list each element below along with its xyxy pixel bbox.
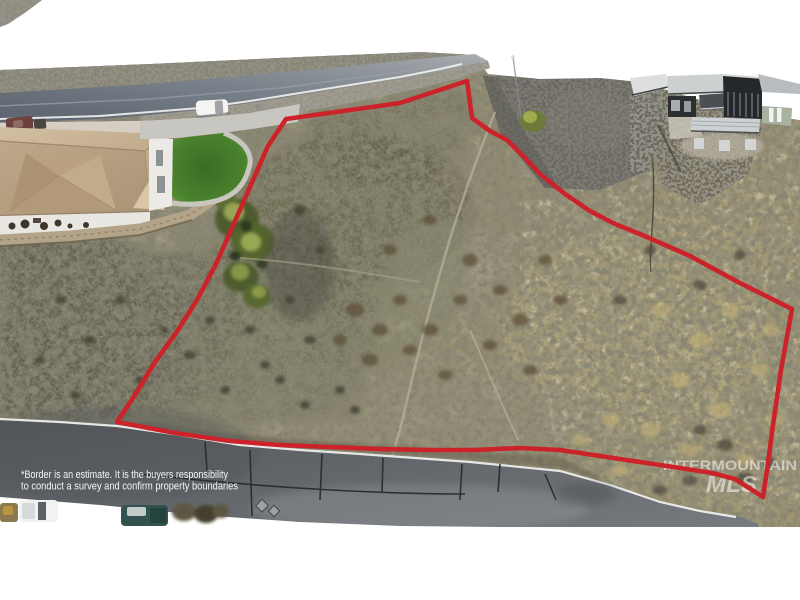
svg-text:*Border is an estimate. It is: *Border is an estimate. It is the buyers… bbox=[21, 469, 228, 481]
svg-text:to conduct a survey and confir: to conduct a survey and confirm property… bbox=[21, 481, 238, 493]
